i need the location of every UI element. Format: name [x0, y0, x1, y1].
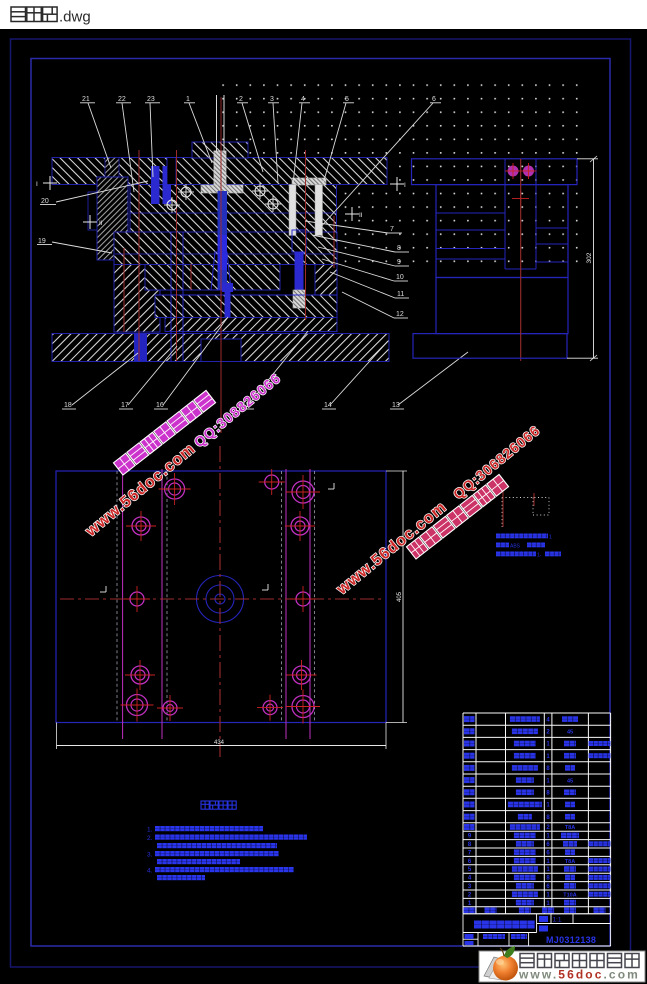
svg-text:22: 22: [118, 96, 126, 103]
svg-text:4: 4: [301, 96, 305, 103]
svg-text:20: 20: [41, 198, 49, 205]
svg-text:1:1: 1:1: [552, 917, 561, 924]
svg-text:I: I: [36, 181, 38, 188]
svg-text:434: 434: [214, 740, 225, 746]
svg-text:4.: 4.: [147, 868, 153, 875]
svg-text:302: 302: [586, 252, 593, 263]
svg-text:T8A: T8A: [565, 859, 575, 865]
svg-text:21: 21: [82, 96, 90, 103]
svg-text:10: 10: [396, 274, 404, 281]
svg-text:3: 3: [270, 96, 274, 103]
svg-text:5: 5: [345, 96, 349, 103]
svg-text:.dwg: .dwg: [59, 9, 91, 26]
svg-text:II: II: [99, 220, 103, 227]
svg-text:405: 405: [397, 591, 403, 602]
svg-text:II: II: [359, 212, 363, 219]
svg-text:11: 11: [397, 291, 404, 298]
svg-text:12: 12: [396, 311, 404, 318]
svg-text:13: 13: [392, 402, 400, 409]
svg-text:45: 45: [567, 730, 573, 736]
svg-text:23: 23: [147, 96, 155, 103]
svg-text:17: 17: [121, 402, 129, 409]
svg-text:1: 1: [549, 535, 552, 541]
svg-text:1.: 1.: [147, 827, 153, 834]
svg-text:19: 19: [38, 238, 46, 245]
svg-text:2: 2: [239, 96, 243, 103]
svg-text:14: 14: [324, 402, 332, 409]
svg-text:T8A: T8A: [565, 825, 575, 831]
svg-text:16: 16: [156, 402, 164, 409]
svg-text:8: 8: [397, 245, 401, 252]
svg-text:www.56doc.com: www.56doc.com: [518, 968, 640, 982]
svg-text:7: 7: [390, 226, 394, 233]
svg-text:3.: 3.: [147, 852, 153, 859]
svg-text:MJ0312138: MJ0312138: [546, 935, 596, 945]
svg-text:2.: 2.: [147, 835, 153, 842]
svg-text:45: 45: [567, 778, 573, 784]
svg-text:T10A: T10A: [563, 892, 576, 898]
svg-text:I: I: [404, 182, 406, 189]
svg-text:ABS: ABS: [510, 544, 521, 550]
svg-text:1: 1: [186, 96, 190, 103]
svg-text:6: 6: [432, 96, 436, 103]
svg-text:1-: 1-: [537, 553, 542, 559]
svg-text:18: 18: [64, 402, 72, 409]
svg-text:9: 9: [397, 259, 401, 266]
